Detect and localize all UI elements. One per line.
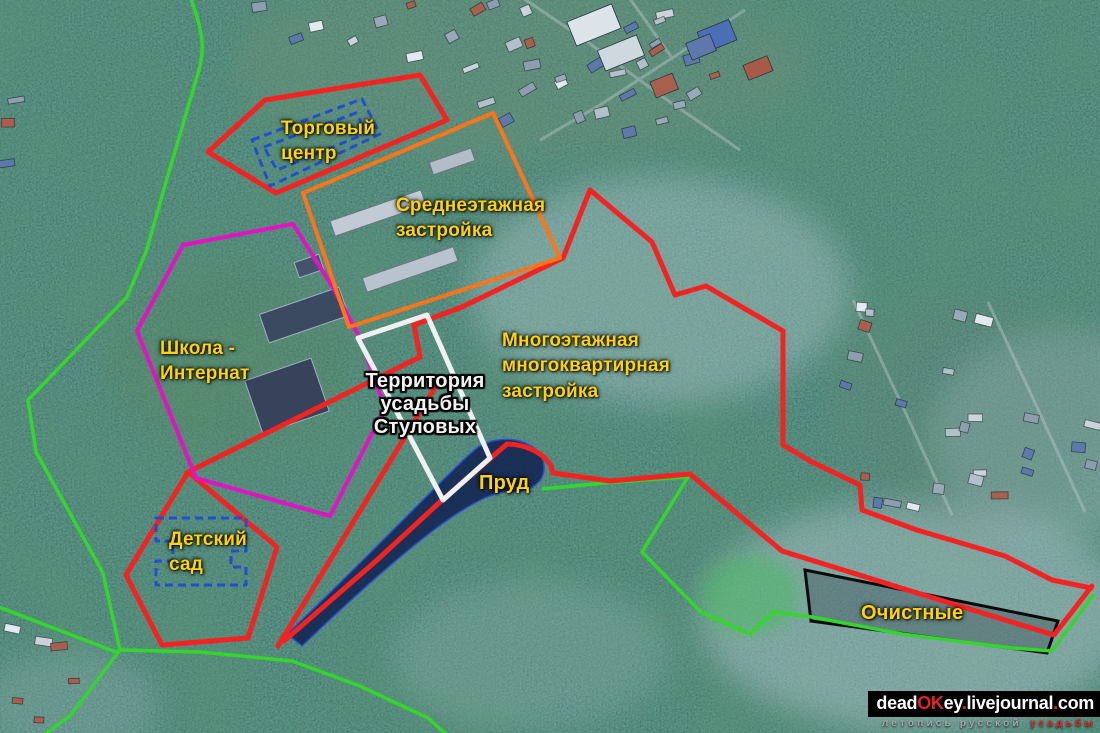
watermark-part: dead: [876, 693, 917, 713]
zone-label-kindergarten: Детский сад: [169, 527, 247, 577]
greenbelt-branch-corner: [42, 650, 120, 733]
zone-label-school: Школа - Интернат: [160, 336, 250, 386]
satellite-map: Торговый центр Среднеэтажная застройка Ш…: [0, 0, 1100, 733]
watermark-part: com: [1058, 693, 1094, 713]
zone-label-treatment: Очистные: [861, 600, 963, 626]
zone-label-multistorey: Многоэтажная многоквартирная застройка: [502, 328, 670, 404]
main-boundary-south: [507, 444, 1092, 635]
zone-label-midrise: Среднеэтажная застройка: [396, 193, 545, 243]
tagline-red: усадьбы: [1030, 718, 1096, 729]
village-roads: [520, 0, 1085, 515]
zone-label-shopping-center: Торговый центр: [281, 116, 375, 166]
zone-label-pond: Пруд: [479, 470, 529, 496]
greenbelt-branch-south: [120, 650, 448, 733]
watermark-tagline: летопись русскойусадьбы: [882, 718, 1096, 729]
watermark-part: OK: [917, 693, 943, 713]
large-roof-buildings: [567, 4, 773, 98]
tagline-grey: летопись русской: [882, 718, 1022, 729]
watermark: deadOKey.livejournal.com: [868, 691, 1100, 717]
zone-label-estate: Территория усадьбы Стуловых: [352, 370, 498, 439]
watermark-part: livejournal: [966, 693, 1053, 713]
watermark-part: ey: [944, 693, 962, 713]
